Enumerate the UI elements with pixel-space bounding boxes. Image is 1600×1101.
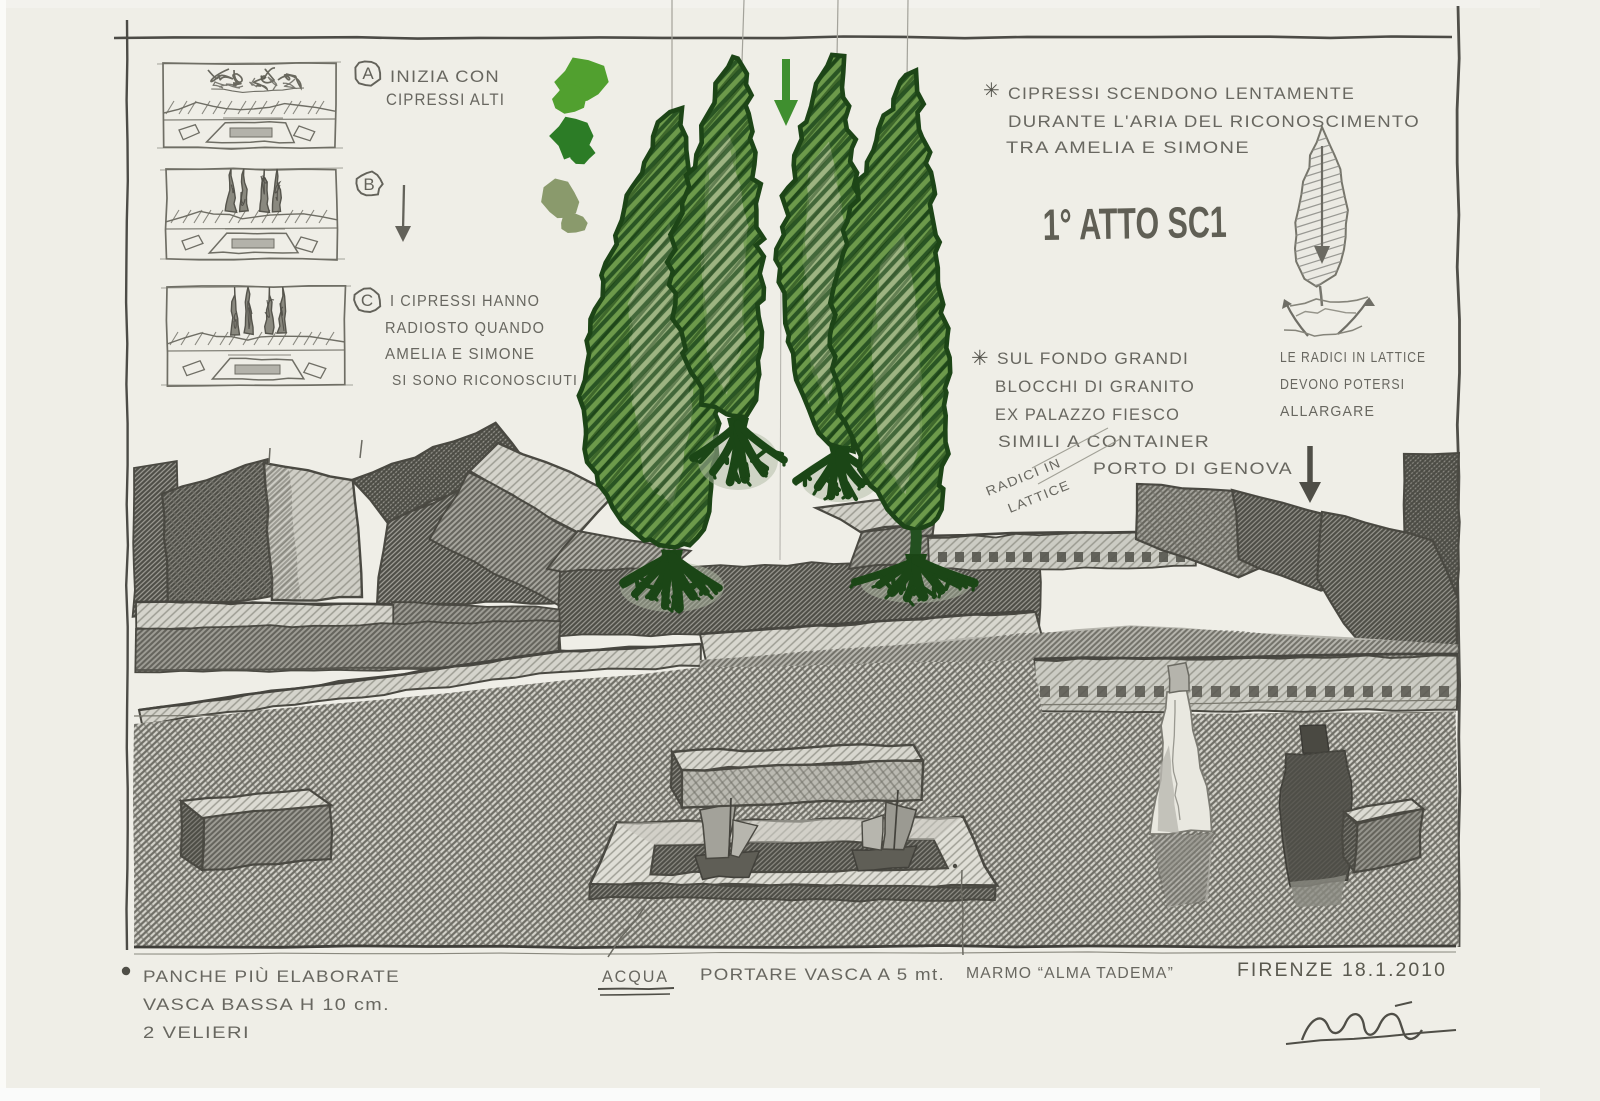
svg-text:FIRENZE 18.1.2010: FIRENZE 18.1.2010 [1237, 960, 1447, 981]
svg-text:I CIPRESSI HANNO: I CIPRESSI HANNO [390, 293, 540, 310]
svg-text:✳: ✳ [971, 347, 990, 370]
svg-text:2 VELIERI: 2 VELIERI [143, 1023, 250, 1042]
svg-text:LE RADICI IN LATTICE: LE RADICI IN LATTICE [1280, 349, 1426, 366]
svg-text:VASCA BASSA H 10 cm.: VASCA BASSA H 10 cm. [143, 995, 390, 1014]
svg-text:BLOCCHI DI GRANITO: BLOCCHI DI GRANITO [995, 377, 1195, 396]
svg-text:SUL FONDO GRANDI: SUL FONDO GRANDI [997, 349, 1189, 368]
svg-text:✳: ✳ [983, 80, 1001, 102]
svg-text:EX PALAZZO FIESCO: EX PALAZZO FIESCO [995, 405, 1180, 424]
svg-text:ALLARGARE: ALLARGARE [1280, 403, 1375, 420]
svg-text:DEVONO POTERSI: DEVONO POTERSI [1280, 376, 1405, 393]
svg-text:SI SONO RICONOSCIUTI: SI SONO RICONOSCIUTI [392, 372, 578, 389]
svg-text:AMELIA E SIMONE: AMELIA E SIMONE [385, 346, 535, 363]
svg-text:ACQUA: ACQUA [602, 967, 669, 986]
svg-text:B: B [363, 175, 374, 194]
svg-text:CIPRESSI ALTI: CIPRESSI ALTI [386, 90, 505, 109]
svg-text:RADIOSTO QUANDO: RADIOSTO QUANDO [385, 320, 545, 337]
svg-text:MARMO “ALMA TADEMA”: MARMO “ALMA TADEMA” [966, 965, 1174, 982]
svg-text:TRA AMELIA E SIMONE: TRA AMELIA E SIMONE [1006, 138, 1250, 157]
svg-text:PANCHE PIÙ ELABORATE: PANCHE PIÙ ELABORATE [143, 967, 400, 986]
svg-text:A: A [362, 64, 374, 83]
svg-text:C: C [361, 291, 373, 310]
svg-text:DURANTE L'ARIA DEL RICONOSCIME: DURANTE L'ARIA DEL RICONOSCIMENTO [1008, 112, 1420, 131]
svg-text:1° ATTO SC1: 1° ATTO SC1 [1042, 198, 1227, 250]
svg-text:PORTARE VASCA A 5 mt.: PORTARE VASCA A 5 mt. [700, 965, 945, 984]
svg-text:PORTO DI GENOVA: PORTO DI GENOVA [1093, 459, 1293, 478]
svg-text:CIPRESSI SCENDONO LENTAMENTE: CIPRESSI SCENDONO LENTAMENTE [1008, 84, 1355, 103]
svg-text:INIZIA CON: INIZIA CON [390, 67, 500, 86]
